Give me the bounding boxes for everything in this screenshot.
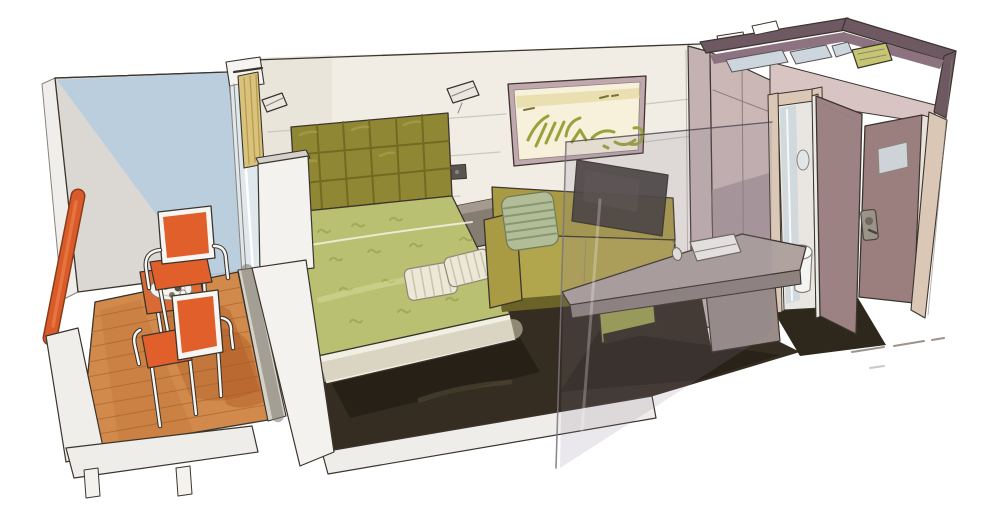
bathroom-mirror — [797, 150, 809, 170]
tufted-headboard — [291, 113, 452, 212]
bathroom-door-open — [812, 94, 862, 334]
slab-leg — [84, 468, 100, 498]
illustration-canvas: Hand-drawn cutaway rendering of a cruise… — [0, 0, 1000, 512]
cabin-cutaway-illustration: Hand-drawn cutaway rendering of a cruise… — [0, 0, 1000, 512]
chair-backrest — [177, 296, 217, 353]
sofa-cushion — [500, 191, 559, 252]
door-handle — [860, 209, 878, 240]
slab-leg — [176, 466, 192, 496]
chair-backrest — [163, 212, 209, 258]
cut-wall-pillar — [256, 150, 314, 274]
